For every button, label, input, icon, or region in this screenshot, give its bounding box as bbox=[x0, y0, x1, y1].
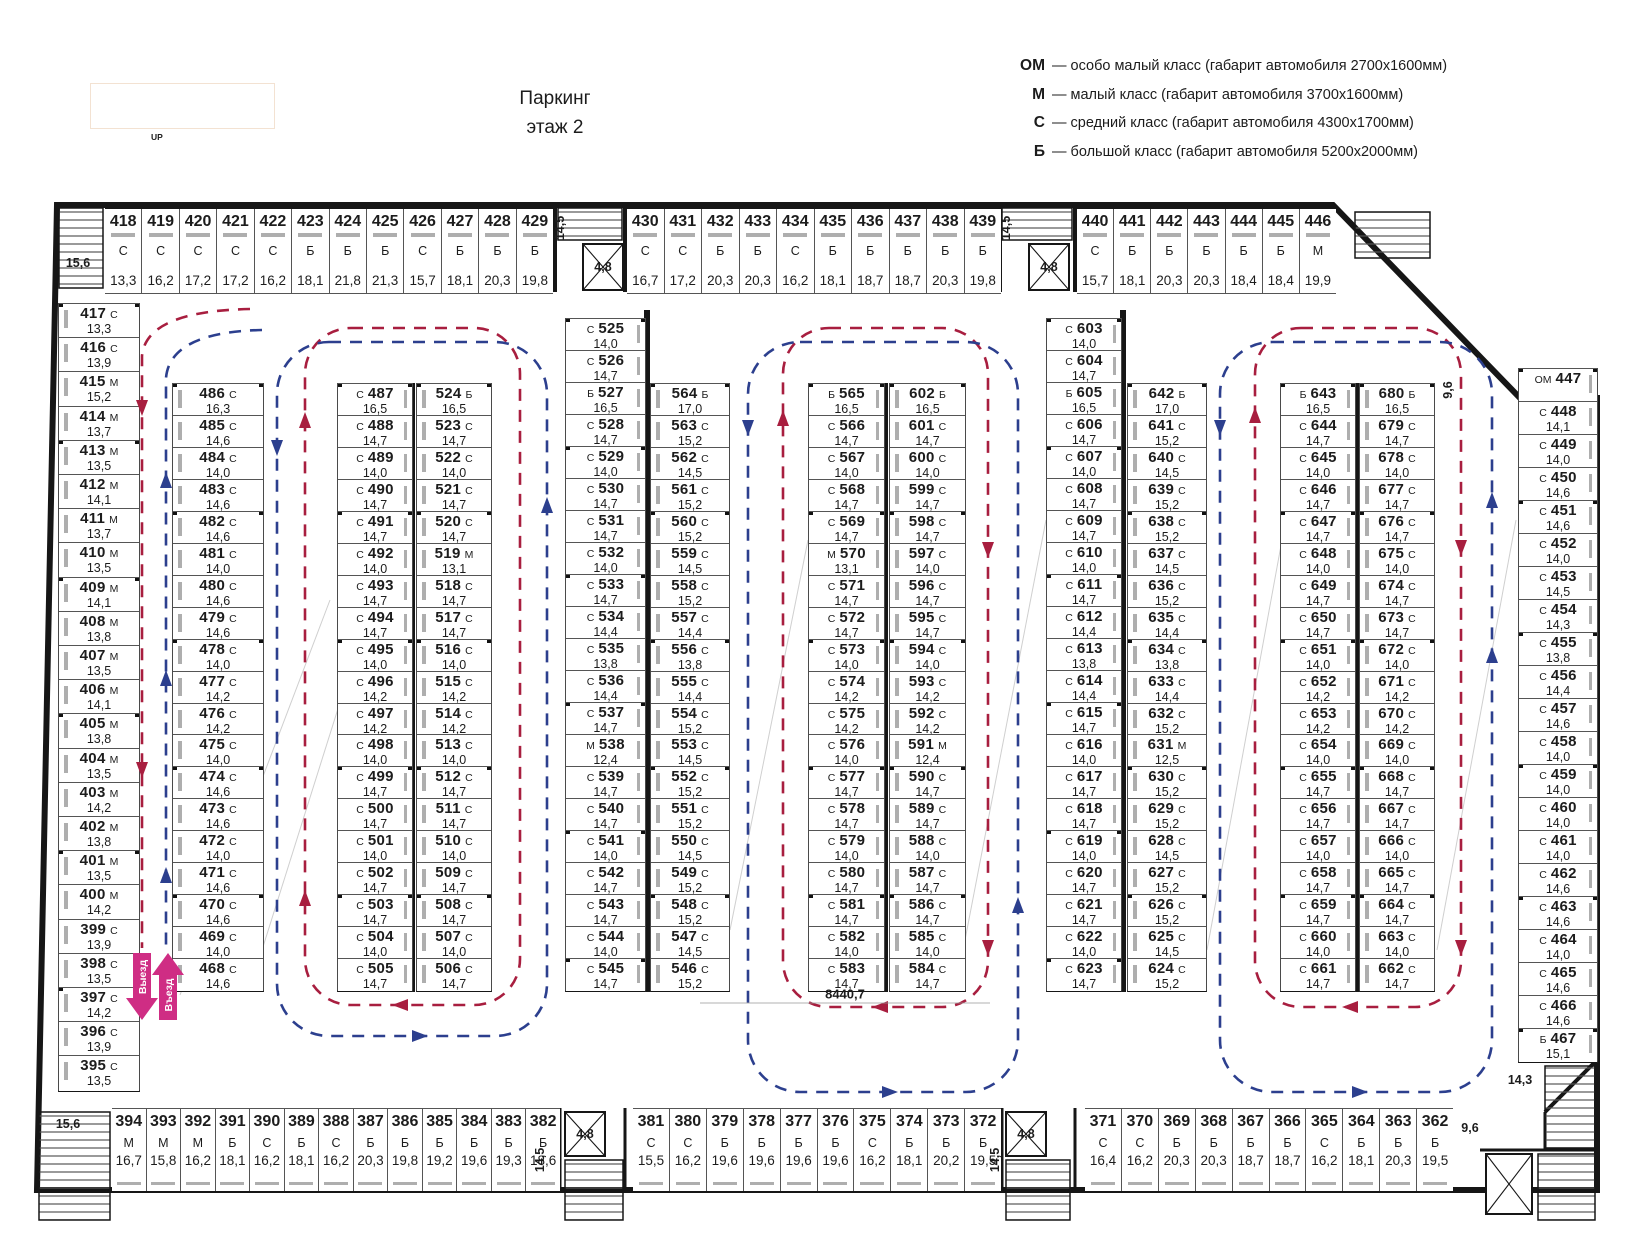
legend-text: — малый класс (габарит автомобиля 3700х1… bbox=[1052, 81, 1403, 110]
entry-banner-label: Въезд bbox=[163, 978, 175, 1011]
parking-floor-plan: СКОЛКОВСКИЙ UP КВАРТАЛ Паркинг этаж 2 ОМ… bbox=[0, 0, 1638, 1238]
exit-banner: Выезд bbox=[126, 953, 158, 1020]
class-legend: ОМ — особо малый класс (габарит автомоби… bbox=[1005, 52, 1545, 166]
skolkovsky-logo: СКОЛКОВСКИЙ UP КВАРТАЛ bbox=[60, 57, 305, 160]
legend-row: Б — большой класс (габарит автомобиля 52… bbox=[1005, 138, 1545, 167]
traffic-routes-layer: Выезд Въезд bbox=[0, 0, 1638, 1238]
logo-title: СКОЛКОВСКИЙ bbox=[90, 83, 275, 129]
logo-up-badge: UP bbox=[148, 131, 166, 145]
legend-code: Б bbox=[1005, 138, 1045, 167]
logo-tag: UP КВАРТАЛ bbox=[148, 131, 225, 145]
route-blue-dashed bbox=[166, 330, 1492, 1092]
legend-code: ОМ bbox=[1005, 52, 1045, 81]
legend-row: ОМ — особо малый класс (габарит автомоби… bbox=[1005, 52, 1545, 81]
route-blue-arrowheads bbox=[160, 420, 1498, 1098]
page-title-line1: Паркинг bbox=[440, 84, 670, 113]
legend-row: М — малый класс (габарит автомобиля 3700… bbox=[1005, 81, 1545, 110]
page-title-line2: этаж 2 bbox=[440, 113, 670, 142]
legend-row: С — средний класс (габарит автомобиля 43… bbox=[1005, 109, 1545, 138]
route-red-dashed bbox=[142, 309, 1461, 1007]
entry-banner: Въезд bbox=[152, 953, 184, 1020]
legend-text: — большой класс (габарит автомобиля 5200… bbox=[1052, 138, 1418, 167]
page-title: Паркинг этаж 2 bbox=[440, 84, 670, 142]
legend-text: — средний класс (габарит автомобиля 4300… bbox=[1052, 109, 1414, 138]
exit-banner-label: Выезд bbox=[137, 960, 149, 995]
legend-text: — особо малый класс (габарит автомобиля … bbox=[1052, 52, 1447, 81]
logo-kvartal-badge: КВАРТАЛ bbox=[169, 131, 225, 145]
legend-code: С bbox=[1005, 109, 1045, 138]
route-red-arrowheads bbox=[136, 400, 1467, 1013]
legend-code: М bbox=[1005, 81, 1045, 110]
